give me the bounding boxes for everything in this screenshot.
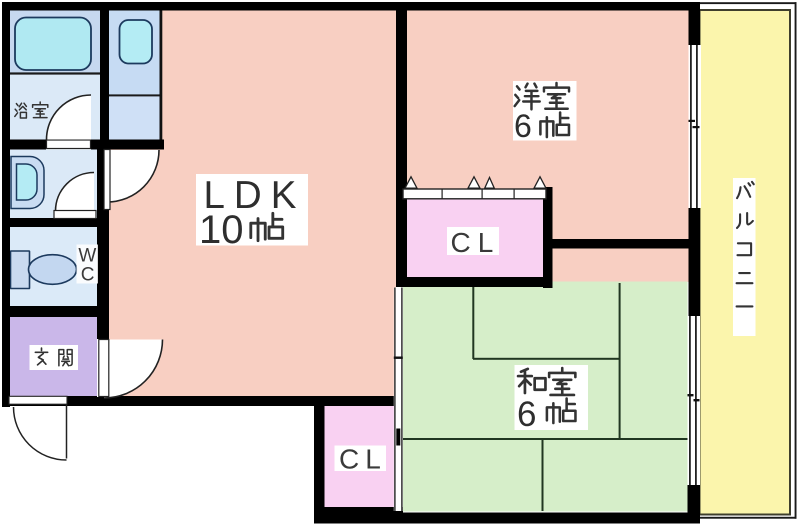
svg-text:W: W	[78, 245, 96, 266]
svg-text:CL: CL	[339, 444, 387, 475]
svg-text:6: 6	[514, 108, 532, 144]
svg-text:C: C	[81, 265, 95, 286]
svg-text:6: 6	[517, 395, 536, 434]
svg-text:10: 10	[199, 208, 244, 252]
svg-text:CL: CL	[451, 227, 501, 258]
